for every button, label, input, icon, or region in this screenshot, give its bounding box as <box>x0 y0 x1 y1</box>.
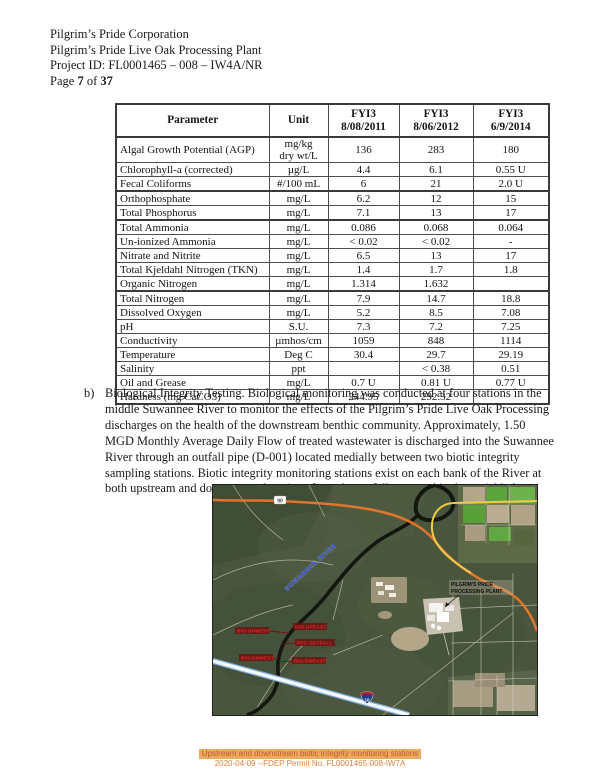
value-cell: 0.068 <box>399 220 473 235</box>
table-row: Conductivityµmhos/cm10598481114 <box>116 334 549 348</box>
svg-text:PROCESSING PLANT: PROCESSING PLANT <box>451 589 502 595</box>
value-cell: 13 <box>399 206 473 221</box>
param-cell: Chlorophyll-a (corrected) <box>116 163 269 177</box>
value-cell: 6.5 <box>328 249 399 263</box>
value-cell: 5.2 <box>328 306 399 320</box>
station-bio-upwest: BIO-UPWEST <box>237 629 270 635</box>
value-cell: mg/L <box>269 235 328 249</box>
value-cell: ppt <box>269 362 328 376</box>
value-cell: 21 <box>399 177 473 192</box>
value-cell: #/100 mL <box>269 177 328 192</box>
document-header: Pilgrim’s Pride Corporation Pilgrim’s Pr… <box>50 27 262 89</box>
col-header-unit: Unit <box>269 104 328 137</box>
table-row: Fecal Coliforms#/100 mL6212.0 U <box>116 177 549 192</box>
param-cell: Un-ionized Ammonia <box>116 235 269 249</box>
page-number-line: Page 7 of 37 <box>50 74 262 90</box>
value-cell: 12 <box>399 191 473 206</box>
value-cell: 0.064 <box>473 220 549 235</box>
value-cell: 7.08 <box>473 306 549 320</box>
us90-shield-icon: 90 <box>274 496 286 504</box>
value-cell: mg/L <box>269 191 328 206</box>
value-cell: < 0.02 <box>399 235 473 249</box>
table-row: Total Ammoniamg/L0.0860.0680.064 <box>116 220 549 235</box>
value-cell: 6 <box>328 177 399 192</box>
svg-text:10: 10 <box>364 698 370 703</box>
value-cell: 1.8 <box>473 263 549 277</box>
table-row: TemperatureDeg C30.429.729.19 <box>116 348 549 362</box>
header-line-project-id: Project ID: FL0001465 – 008 – IW4A/NR <box>50 58 262 74</box>
param-cell: Nitrate and Nitrite <box>116 249 269 263</box>
header-line-company: Pilgrim’s Pride Corporation <box>50 27 262 43</box>
value-cell: 1059 <box>328 334 399 348</box>
page-number: 7 <box>77 74 83 88</box>
value-cell: 4.4 <box>328 163 399 177</box>
station-bio-dneast: BIO-DNEAST <box>294 659 326 665</box>
table-row: pHS.U.7.37.27.25 <box>116 320 549 334</box>
value-cell: 283 <box>399 137 473 163</box>
table-row: Algal Growth Potential (AGP)mg/kg dry wt… <box>116 137 549 163</box>
table-header-row: Parameter Unit FYI38/08/2011 FYI38/06/20… <box>116 104 549 137</box>
caption-line1: Upstream and downstream biotic integrity… <box>199 749 422 759</box>
value-cell: 136 <box>328 137 399 163</box>
aerial-map: 90 10 SUWANNEE RIVER PILGRIM'S PRIDE PRO… <box>212 484 538 716</box>
aerial-map-image: 90 10 SUWANNEE RIVER PILGRIM'S PRIDE PRO… <box>213 485 537 715</box>
value-cell: 1.7 <box>399 263 473 277</box>
farm-fields-north <box>458 485 537 563</box>
list-item-marker: b) <box>84 386 105 497</box>
value-cell: 30.4 <box>328 348 399 362</box>
table-row: Orthophosphatemg/L6.21215 <box>116 191 549 206</box>
param-cell: Fecal Coliforms <box>116 177 269 192</box>
value-cell: 17 <box>473 206 549 221</box>
param-cell: Conductivity <box>116 334 269 348</box>
value-cell: 1.4 <box>328 263 399 277</box>
station-bio-upeast: BIO-UPEAST <box>295 625 327 631</box>
value-cell <box>473 277 549 292</box>
value-cell <box>328 362 399 376</box>
table-row: Total Phosphorusmg/L7.11317 <box>116 206 549 221</box>
svg-text:PILGRIM'S PRIDE: PILGRIM'S PRIDE <box>451 582 494 588</box>
value-cell: 180 <box>473 137 549 163</box>
table-row: Organic Nitrogenmg/L1.3141.632 <box>116 277 549 292</box>
svg-text:90: 90 <box>277 498 283 504</box>
value-cell: 7.9 <box>328 291 399 306</box>
value-cell: 0.55 U <box>473 163 549 177</box>
value-cell: - <box>473 235 549 249</box>
farm-complex <box>371 577 407 603</box>
col-header-fyi3-2012: FYI38/06/2012 <box>399 104 473 137</box>
value-cell: 1114 <box>473 334 549 348</box>
value-cell: 8.5 <box>399 306 473 320</box>
value-cell: mg/L <box>269 306 328 320</box>
value-cell: 1.632 <box>399 277 473 292</box>
param-cell: Total Phosphorus <box>116 206 269 221</box>
table-row: Chlorophyll-a (corrected)µg/L4.46.10.55 … <box>116 163 549 177</box>
value-cell: < 0.38 <box>399 362 473 376</box>
value-cell: S.U. <box>269 320 328 334</box>
value-cell: 29.19 <box>473 348 549 362</box>
header-line-plant: Pilgrim’s Pride Live Oak Processing Plan… <box>50 43 262 59</box>
col-header-parameter: Parameter <box>116 104 269 137</box>
station-ppc-outfall: PPC OUTFALL <box>297 641 333 647</box>
value-cell: 1.314 <box>328 277 399 292</box>
value-cell: µg/L <box>269 163 328 177</box>
value-cell: 6.2 <box>328 191 399 206</box>
table-row: Nitrate and Nitritemg/L6.51317 <box>116 249 549 263</box>
value-cell: 2.0 U <box>473 177 549 192</box>
param-cell: Temperature <box>116 348 269 362</box>
value-cell: µmhos/cm <box>269 334 328 348</box>
value-cell: 7.3 <box>328 320 399 334</box>
value-cell: Deg C <box>269 348 328 362</box>
value-cell: 7.1 <box>328 206 399 221</box>
value-cell: 848 <box>399 334 473 348</box>
value-cell: mg/L <box>269 291 328 306</box>
value-cell: < 0.02 <box>328 235 399 249</box>
param-cell: Total Kjeldahl Nitrogen (TKN) <box>116 263 269 277</box>
value-cell: mg/L <box>269 249 328 263</box>
table-row: Total Nitrogenmg/L7.914.718.8 <box>116 291 549 306</box>
value-cell: 18.8 <box>473 291 549 306</box>
param-cell: Salinity <box>116 362 269 376</box>
value-cell: mg/L <box>269 263 328 277</box>
value-cell: 0.086 <box>328 220 399 235</box>
param-cell: Orthophosphate <box>116 191 269 206</box>
table-row: Un-ionized Ammoniamg/L< 0.02< 0.02- <box>116 235 549 249</box>
col-header-fyi3-2014: FYI36/9/2014 <box>473 104 549 137</box>
table-row: Total Kjeldahl Nitrogen (TKN)mg/L1.41.71… <box>116 263 549 277</box>
value-cell: 7.25 <box>473 320 549 334</box>
station-bio-dnwest: BIO-DNWEST <box>241 656 274 662</box>
value-cell: 0.51 <box>473 362 549 376</box>
map-caption: Upstream and downstream biotic integrity… <box>160 749 460 768</box>
value-cell: mg/L <box>269 220 328 235</box>
table-row: Dissolved Oxygenmg/L5.28.57.08 <box>116 306 549 320</box>
param-cell: pH <box>116 320 269 334</box>
param-cell: Dissolved Oxygen <box>116 306 269 320</box>
col-header-fyi3-2011: FYI38/08/2011 <box>328 104 399 137</box>
value-cell: 14.7 <box>399 291 473 306</box>
caption-line2: 2020-04-09 --FDEP Permit No. FL0001465-0… <box>215 759 406 768</box>
table-body: Algal Growth Potential (AGP)mg/kg dry wt… <box>116 137 549 404</box>
value-cell: 7.2 <box>399 320 473 334</box>
value-cell: mg/kg dry wt/L <box>269 137 328 163</box>
value-cell: 15 <box>473 191 549 206</box>
param-cell: Organic Nitrogen <box>116 277 269 292</box>
paragraph-biological-integrity: b) Biological Integrity Testing. Biologi… <box>84 386 554 497</box>
clearing-pond <box>391 627 429 651</box>
param-cell: Total Nitrogen <box>116 291 269 306</box>
parameters-table: Parameter Unit FYI38/08/2011 FYI38/06/20… <box>115 103 550 405</box>
param-cell: Total Ammonia <box>116 220 269 235</box>
paragraph-text: Biological Integrity Testing. Biological… <box>105 386 554 497</box>
value-cell: mg/L <box>269 206 328 221</box>
farm-fields-southeast <box>448 670 537 715</box>
param-cell: Algal Growth Potential (AGP) <box>116 137 269 163</box>
value-cell: 17 <box>473 249 549 263</box>
page-total: 37 <box>100 74 113 88</box>
value-cell: 29.7 <box>399 348 473 362</box>
table-row: Salinityppt< 0.380.51 <box>116 362 549 376</box>
value-cell: 6.1 <box>399 163 473 177</box>
value-cell: 13 <box>399 249 473 263</box>
value-cell: mg/L <box>269 277 328 292</box>
